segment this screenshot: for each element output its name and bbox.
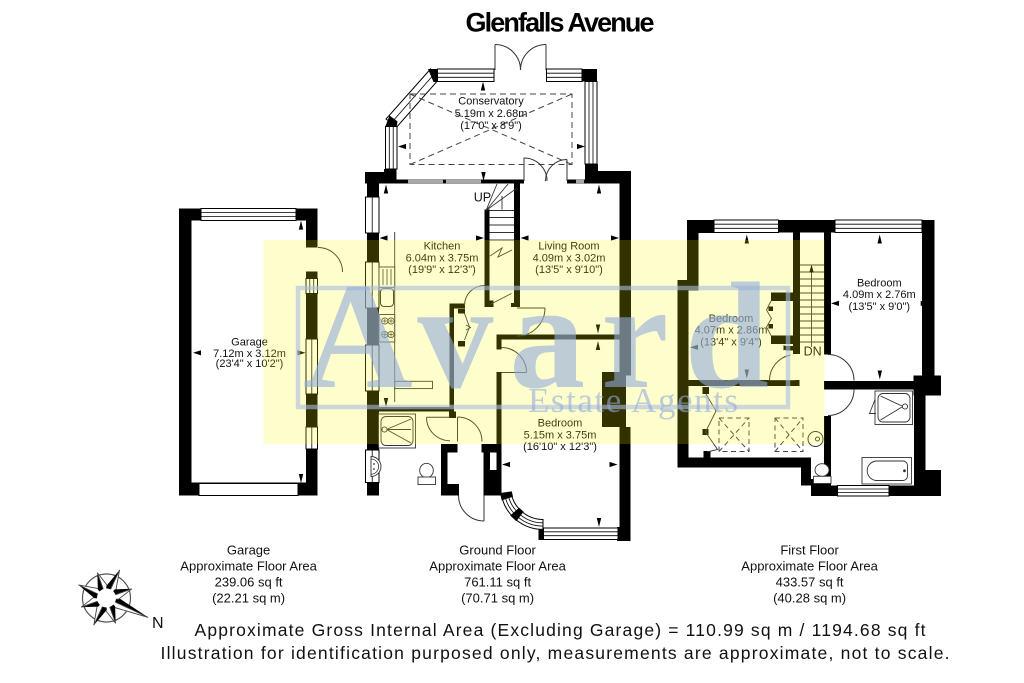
svg-text:Approximate Floor Area: Approximate Floor Area — [429, 559, 566, 574]
svg-text:(13'5" x 9'0"): (13'5" x 9'0") — [849, 301, 911, 313]
svg-text:First Floor: First Floor — [780, 543, 839, 558]
svg-text:4.09m x 2.76m: 4.09m x 2.76m — [843, 289, 916, 301]
svg-text:Garage: Garage — [227, 543, 270, 558]
svg-text:Approximate Gross Internal Are: Approximate Gross Internal Area (Excludi… — [195, 620, 926, 640]
svg-text:Bedroom: Bedroom — [857, 278, 902, 290]
svg-text:Ground Floor: Ground Floor — [459, 543, 536, 558]
svg-text:Approximate Floor Area: Approximate Floor Area — [180, 559, 317, 574]
svg-text:5.19m x 2.68m: 5.19m x 2.68m — [455, 108, 528, 120]
svg-text:Conservatory: Conservatory — [458, 96, 524, 108]
svg-text:(17'0" x 8'9"): (17'0" x 8'9") — [460, 120, 522, 132]
svg-text:(40.28 sq m): (40.28 sq m) — [773, 591, 846, 606]
svg-text:N: N — [152, 615, 164, 632]
svg-text:761.11 sq ft: 761.11 sq ft — [464, 575, 531, 590]
svg-text:433.57 sq ft: 433.57 sq ft — [776, 575, 844, 590]
svg-text:(22.21 sq m): (22.21 sq m) — [212, 591, 285, 606]
svg-text:Garage: Garage — [231, 336, 268, 348]
svg-text:Estate Agents: Estate Agents — [528, 381, 738, 420]
svg-text:Illustration for identificatio: Illustration for identification purposed… — [161, 643, 950, 663]
svg-text:Glenfalls Avenue: Glenfalls Avenue — [466, 8, 655, 38]
svg-text:Approximate Floor Area: Approximate Floor Area — [741, 559, 878, 574]
svg-text:UP: UP — [474, 191, 491, 205]
svg-text:239.06 sq ft: 239.06 sq ft — [215, 575, 283, 590]
svg-text:(70.71 sq m): (70.71 sq m) — [461, 591, 534, 606]
